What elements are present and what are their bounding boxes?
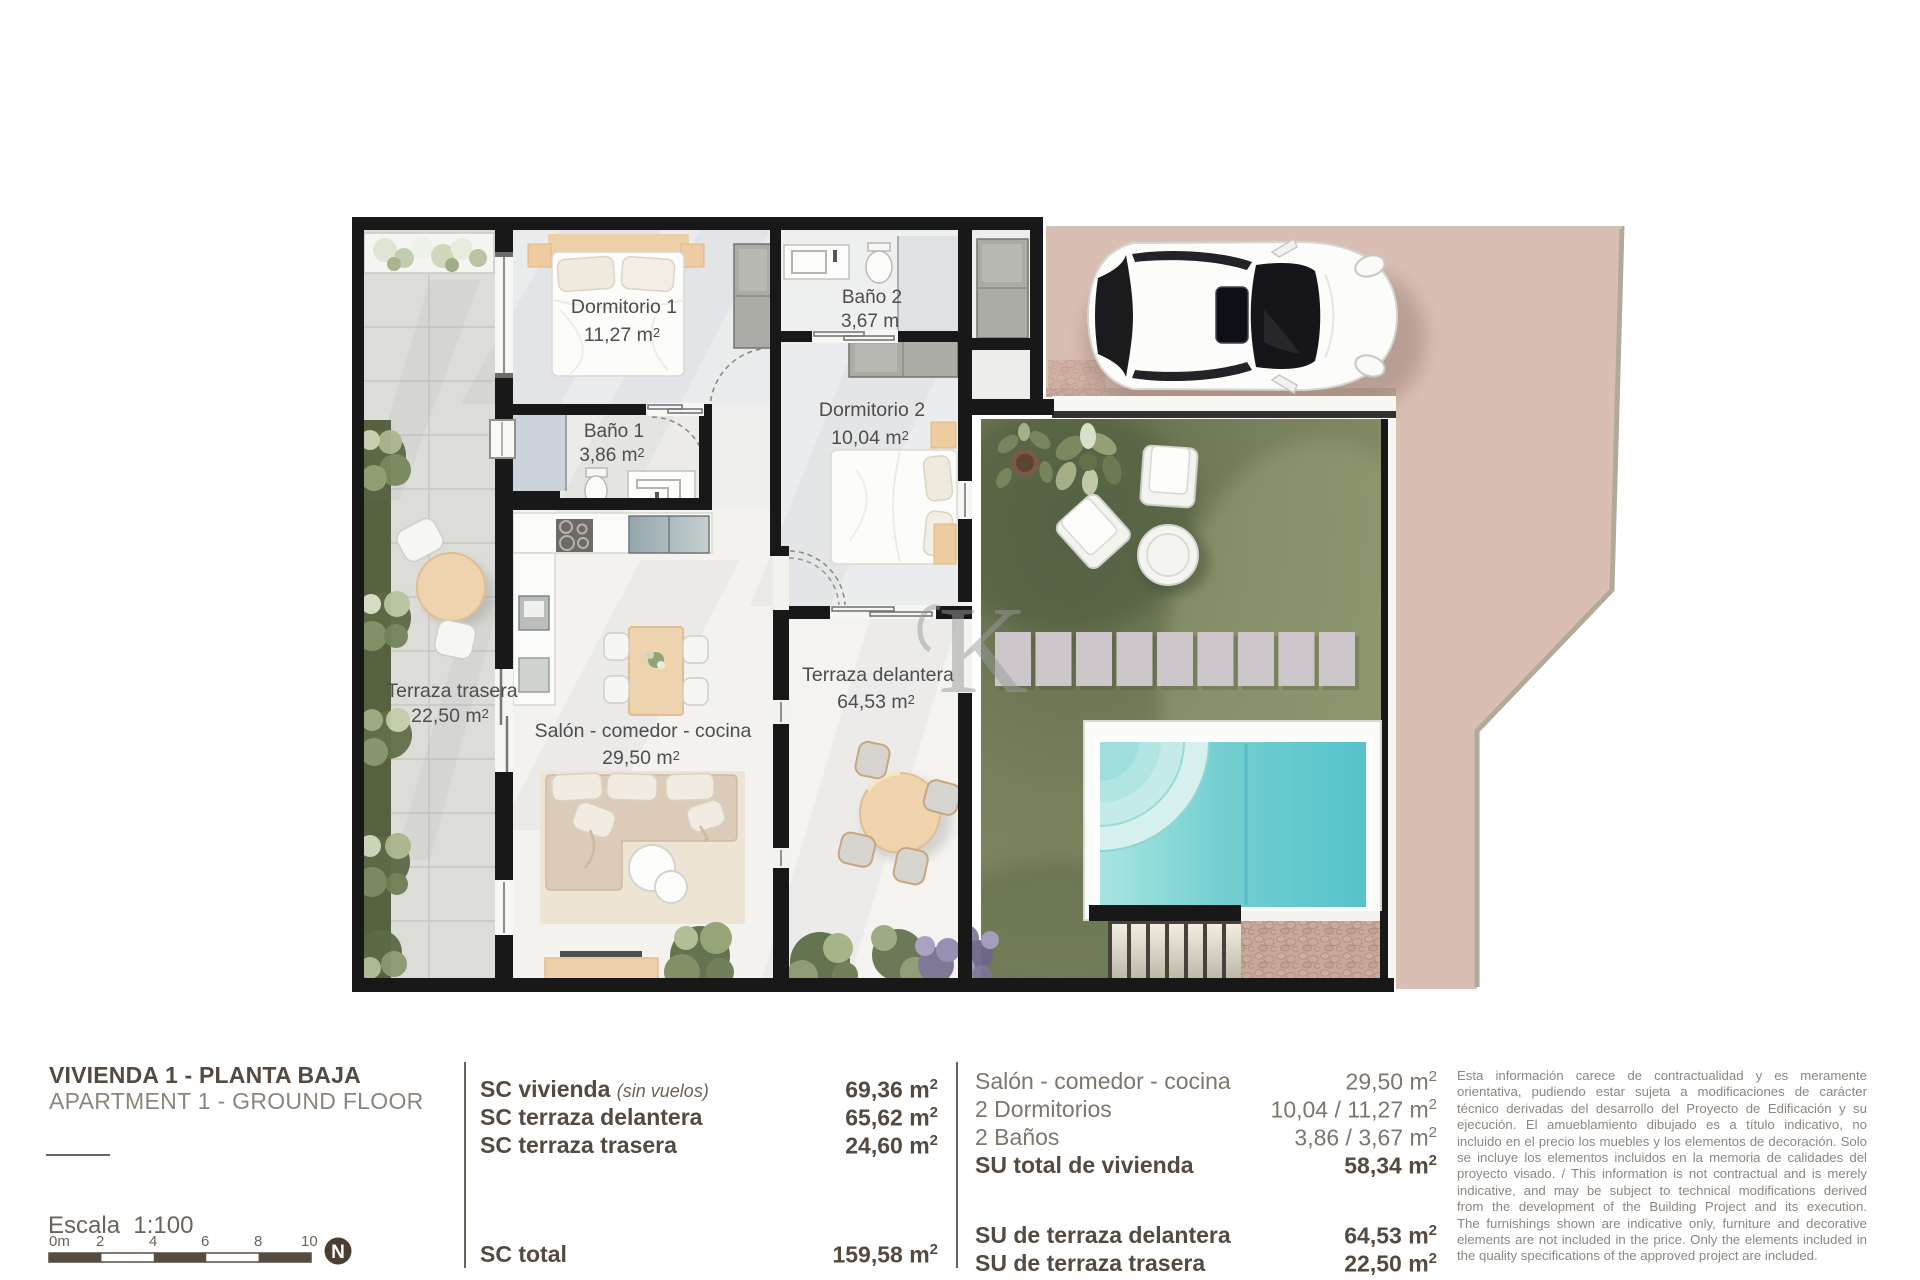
svg-text:3,86 m2: 3,86 m2 xyxy=(579,445,644,466)
svg-text:22,50 m2: 22,50 m2 xyxy=(411,705,489,727)
svg-text:6: 6 xyxy=(201,1233,209,1250)
svg-text:29,50 m2: 29,50 m2 xyxy=(602,747,680,769)
svg-text:3,67 m: 3,67 m xyxy=(841,311,899,332)
svg-text:8: 8 xyxy=(254,1233,262,1250)
svg-text:11,27 m2: 11,27 m2 xyxy=(584,324,660,346)
svg-text:Salón - comedor - cocina: Salón - comedor - cocina xyxy=(535,720,752,742)
svg-text:Baño 1: Baño 1 xyxy=(584,421,644,442)
svg-text:Dormitorio 1: Dormitorio 1 xyxy=(571,296,677,318)
svg-text:64,53 m2: 64,53 m2 xyxy=(837,691,915,713)
svg-text:Terraza trasera: Terraza trasera xyxy=(386,680,517,702)
svg-text:2: 2 xyxy=(96,1233,104,1250)
svg-text:Baño 2: Baño 2 xyxy=(842,287,902,308)
svg-text:10: 10 xyxy=(301,1233,318,1250)
svg-text:K: K xyxy=(938,582,1028,720)
svg-text:Terraza delantera: Terraza delantera xyxy=(802,664,954,686)
svg-text:0m: 0m xyxy=(49,1233,70,1250)
svg-text:N: N xyxy=(331,1242,345,1263)
svg-text:Dormitorio 2: Dormitorio 2 xyxy=(819,399,925,421)
svg-text:4: 4 xyxy=(149,1233,157,1250)
svg-text:10,04 m2: 10,04 m2 xyxy=(831,427,909,449)
